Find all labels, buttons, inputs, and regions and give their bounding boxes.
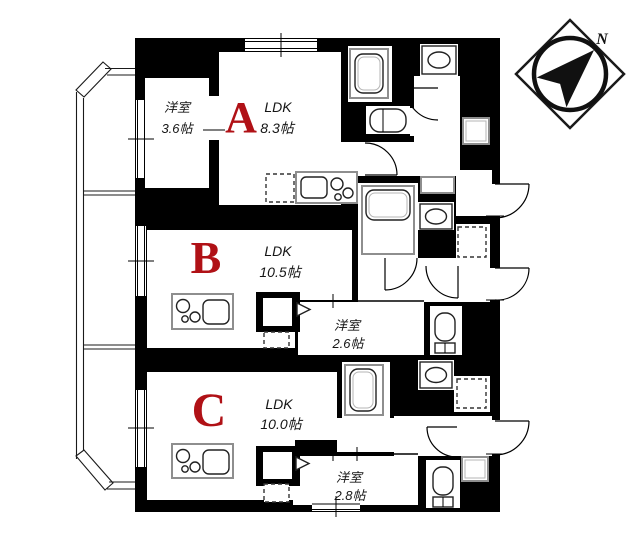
washbasin-c (420, 362, 452, 388)
ldk-label-a: LDK (264, 99, 292, 115)
unit-a-entry-floor (456, 170, 492, 216)
north-label: N (595, 31, 609, 48)
stove-burner-icon (182, 466, 188, 472)
ldk-label-c: LDK (265, 396, 293, 412)
kitchen-c (172, 444, 233, 478)
floor-plan-page: A LDK 8.3帖 洋室 3.6帖 B LDK 10.5帖 洋室 2.6帖 C… (0, 0, 632, 534)
unit-b-hall-floor (358, 258, 490, 302)
bedroom-size-b: 2.6帖 (331, 336, 365, 351)
toilet-b (435, 313, 455, 353)
bath-c (345, 365, 383, 415)
unit-b-ldk-extension (295, 230, 352, 300)
kitchen-b (172, 294, 233, 329)
bedroom-size-a: 3.6帖 (161, 121, 194, 136)
unit-a-bedroom-doorway (209, 96, 219, 140)
unit-c-corridor-floor (337, 418, 394, 452)
stove-burner-icon (177, 300, 190, 313)
kitchen-sink-a (301, 177, 327, 198)
washbasin-a (422, 46, 456, 74)
unit-letter-b: B (191, 232, 222, 283)
unit-letter-a: A (225, 93, 257, 142)
toilet-icon (433, 467, 453, 495)
toilet-c (433, 467, 453, 507)
unit-c-hall-floor (394, 416, 492, 456)
closet-c (462, 457, 488, 481)
bath-b (362, 186, 414, 254)
bedroom-label-c: 洋室 (336, 470, 364, 485)
toilet-icon (370, 109, 406, 132)
toilet-a (370, 109, 406, 132)
unit-a-corridor-floor (341, 142, 414, 176)
washer-space-c (457, 379, 486, 408)
bath-a (350, 49, 388, 98)
unit-letter-c: C (192, 384, 227, 437)
floor-plan: A LDK 8.3帖 洋室 3.6帖 B LDK 10.5帖 洋室 2.6帖 C… (0, 0, 632, 534)
stove-burner-icon (335, 194, 341, 200)
stove-burner-icon (177, 450, 190, 463)
kitchen-a (266, 172, 357, 203)
washer-space-b (458, 227, 486, 257)
unit-b-entry-doorway (490, 268, 500, 300)
shoe-cabinet-a (421, 177, 454, 193)
fridge-space-a (266, 174, 294, 202)
unit-c-entry-doorway (490, 420, 500, 454)
bedroom-size-c: 2.8帖 (333, 488, 367, 503)
unit-a-hall-floor (414, 76, 460, 176)
kitchen-sink-b (203, 300, 229, 324)
kitchen-sink-c (203, 450, 229, 474)
stove-burner-icon (190, 312, 200, 322)
bathtub-b (366, 190, 410, 220)
bedroom-label-b: 洋室 (334, 318, 362, 333)
stove-burner-icon (331, 178, 343, 190)
stove-burner-icon (343, 188, 353, 198)
ldk-size-a: 8.3帖 (260, 120, 295, 136)
washer-space-c2 (264, 484, 289, 502)
ldk-size-c: 10.0帖 (260, 416, 303, 432)
stove-burner-icon (190, 462, 200, 472)
toilet-icon (435, 313, 455, 341)
washer-space-b2 (264, 332, 289, 348)
stove-burner-icon (182, 316, 188, 322)
ldk-label-b: LDK (264, 243, 292, 259)
washbasin-b (420, 204, 452, 229)
ldk-size-b: 10.5帖 (259, 264, 302, 280)
unit-c-shaft (263, 452, 292, 479)
unit-a-toilet-doorway (410, 108, 414, 136)
unit-a-entry-doorway (490, 184, 500, 216)
bedroom-label-a: 洋室 (164, 100, 192, 115)
closet-a (463, 118, 489, 144)
unit-b-shaft (263, 298, 292, 326)
